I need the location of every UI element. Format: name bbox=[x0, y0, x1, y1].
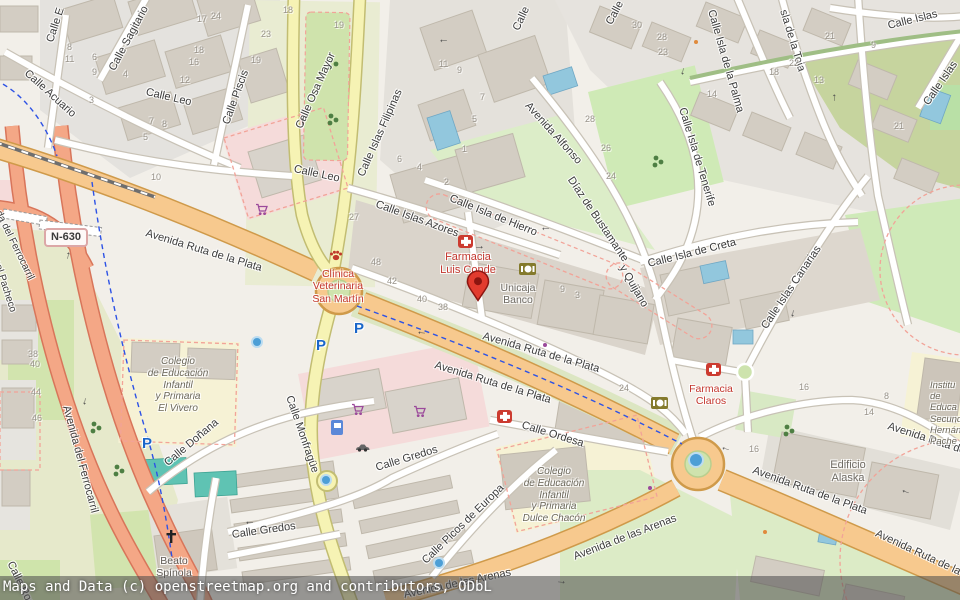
house-number: 8 bbox=[67, 42, 72, 52]
oneway-arrow: → bbox=[79, 395, 92, 408]
house-number: 18 bbox=[194, 45, 204, 55]
poi-claros-line2: Claros bbox=[680, 395, 742, 407]
house-number: 23 bbox=[658, 47, 668, 57]
house-number: 6 bbox=[397, 154, 402, 164]
attribution-bar: Maps and Data (c) openstreetmap.org and … bbox=[0, 576, 960, 600]
house-number: 40 bbox=[30, 359, 40, 369]
house-number: 7 bbox=[480, 92, 485, 102]
first-aid-icon bbox=[497, 410, 512, 423]
house-number: 8 bbox=[884, 391, 889, 401]
house-number: 9 bbox=[871, 40, 876, 50]
house-number: 3 bbox=[89, 95, 94, 105]
poi-claros-line1: Farmacia bbox=[680, 383, 742, 395]
poi-farmacia-luis-conde-line1: Farmacia bbox=[420, 251, 516, 264]
poi-farmacia-claros: Farmacia Claros bbox=[680, 383, 742, 408]
oneway-arrow: → bbox=[540, 224, 551, 235]
poi-instituto-line1: Institu bbox=[930, 380, 960, 391]
poi-unicaja-line2: Banco bbox=[488, 294, 548, 306]
oneway-arrow: → bbox=[416, 328, 428, 340]
poi-dot bbox=[694, 40, 698, 44]
poi-beato-line1: Beato bbox=[148, 555, 200, 567]
house-number: 7 bbox=[149, 116, 154, 126]
house-number: 48 bbox=[371, 257, 381, 267]
poi-chacon-line4: y Primaria bbox=[518, 501, 590, 513]
map-marker-pin[interactable] bbox=[466, 270, 490, 307]
house-number: 28 bbox=[585, 114, 595, 124]
house-number: 10 bbox=[151, 172, 161, 182]
road-shield-n630: N-630 bbox=[44, 228, 88, 247]
house-number: 18 bbox=[769, 67, 779, 77]
poi-dot bbox=[648, 486, 652, 490]
house-number: 23 bbox=[261, 29, 271, 39]
poi-clinica-veterinaria: Clínica Veterinaria San Martín bbox=[300, 268, 376, 305]
fountain-icon bbox=[320, 474, 332, 486]
car-dealer-icon bbox=[355, 439, 370, 457]
poi-instituto-line4: Hernán bbox=[930, 425, 960, 436]
house-number: 1 bbox=[462, 144, 467, 154]
poi-edificio-alaska: Edificio Alaska bbox=[820, 459, 876, 485]
house-number: 21 bbox=[825, 31, 835, 41]
house-number: 18 bbox=[283, 5, 293, 15]
poi-instituto-line5: Pache bbox=[930, 436, 960, 447]
parking-icon: P bbox=[142, 436, 152, 451]
poi-dot bbox=[543, 343, 547, 347]
house-number: 42 bbox=[387, 276, 397, 286]
poi-chacon-line5: Dulce Chacón bbox=[518, 513, 590, 525]
house-number: 27 bbox=[349, 212, 359, 222]
poi-instituto-line3: Secunda bbox=[930, 414, 960, 425]
oneway-arrow: → bbox=[531, 389, 544, 402]
atm-icon bbox=[651, 397, 668, 409]
supermarket-cart-icon bbox=[351, 403, 365, 421]
fuel-station-icon bbox=[331, 420, 343, 435]
poi-unicaja-line1: Unicaja bbox=[488, 282, 548, 294]
house-number: 9 bbox=[457, 65, 462, 75]
house-number: 40 bbox=[417, 294, 427, 304]
fountain-icon bbox=[251, 336, 263, 348]
veterinary-paw-icon bbox=[329, 249, 343, 267]
oneway-arrow: → bbox=[828, 92, 839, 103]
poi-alaska-line2: Alaska bbox=[820, 472, 876, 485]
house-number: 5 bbox=[143, 132, 148, 142]
house-number: 28 bbox=[657, 32, 667, 42]
poi-colegio-el-vivero: Colegio de Educación Infantil y Primaria… bbox=[132, 356, 224, 415]
house-number: 4 bbox=[417, 162, 422, 172]
house-number: 21 bbox=[894, 121, 904, 131]
house-number: 3 bbox=[575, 290, 580, 300]
house-number: 46 bbox=[32, 413, 42, 423]
oneway-arrow: → bbox=[677, 65, 690, 78]
poi-chacon-line1: Colegio bbox=[518, 466, 590, 478]
poi-vivero-line5: El Vivero bbox=[132, 403, 224, 415]
parking-icon: P bbox=[354, 321, 364, 336]
house-number: 38 bbox=[438, 302, 448, 312]
supermarket-cart-icon bbox=[413, 405, 427, 423]
poi-vivero-line4: y Primaria bbox=[132, 391, 224, 403]
poi-chacon-line3: Infantil bbox=[518, 490, 590, 502]
poi-vivero-line3: Infantil bbox=[132, 380, 224, 392]
pharmacy-icon bbox=[706, 363, 721, 376]
poi-instituto-line2: de Educa bbox=[930, 391, 960, 413]
oneway-arrow: → bbox=[438, 36, 449, 47]
poi-vivero-line1: Colegio bbox=[132, 356, 224, 368]
house-number: 14 bbox=[864, 407, 874, 417]
oneway-arrow: → bbox=[787, 307, 800, 320]
house-number: 19 bbox=[251, 55, 261, 65]
house-number: 24 bbox=[211, 11, 221, 21]
house-number: 9 bbox=[92, 67, 97, 77]
parking-icon: P bbox=[316, 338, 326, 353]
house-number: 16 bbox=[189, 57, 199, 67]
house-number: 24 bbox=[606, 171, 616, 181]
house-number: 16 bbox=[799, 382, 809, 392]
poi-clinica-line2: Veterinaria bbox=[300, 280, 376, 292]
house-number: 12 bbox=[180, 75, 190, 85]
house-number: 4 bbox=[123, 69, 128, 79]
poi-chacon-line2: de Educación bbox=[518, 478, 590, 490]
house-number: 19 bbox=[334, 20, 344, 30]
house-number: 16 bbox=[749, 444, 759, 454]
supermarket-cart-icon bbox=[255, 203, 269, 221]
oneway-arrow: → bbox=[61, 249, 74, 262]
house-number: 9 bbox=[560, 284, 565, 294]
poi-alaska-line1: Edificio bbox=[820, 459, 876, 472]
bank-icon bbox=[519, 263, 536, 275]
church-cross-icon bbox=[165, 530, 177, 549]
house-number: 2 bbox=[444, 177, 449, 187]
pharmacy-icon bbox=[458, 235, 473, 248]
fountain-icon bbox=[433, 557, 445, 569]
poi-instituto-partial: Institu de Educa Secunda Hernán Pache bbox=[930, 380, 960, 447]
oneway-arrow: → bbox=[296, 116, 307, 127]
house-number: 11 bbox=[65, 54, 74, 64]
poi-dot bbox=[763, 530, 767, 534]
house-number: 11 bbox=[439, 59, 448, 69]
house-number: 13 bbox=[814, 75, 824, 85]
house-number: 26 bbox=[601, 143, 611, 153]
oneway-arrow: → bbox=[474, 241, 485, 252]
fountain-icon bbox=[688, 452, 704, 468]
poi-unicaja-banco: Unicaja Banco bbox=[488, 282, 548, 307]
house-number: 24 bbox=[619, 383, 629, 393]
house-number: 22 bbox=[789, 58, 799, 68]
poi-clinica-line3: San Martín bbox=[300, 293, 376, 305]
poi-vivero-line2: de Educación bbox=[132, 368, 224, 380]
house-number: 6 bbox=[92, 52, 97, 62]
house-number: 44 bbox=[31, 387, 41, 397]
house-number: 30 bbox=[632, 20, 642, 30]
poi-colegio-dulce-chacon: Colegio de Educación Infantil y Primaria… bbox=[518, 466, 590, 525]
house-number: 8 bbox=[162, 119, 167, 129]
attribution-text: Maps and Data (c) openstreetmap.org and … bbox=[3, 579, 492, 595]
oneway-arrow: → bbox=[244, 518, 255, 529]
house-number: 17 bbox=[197, 14, 207, 24]
map-canvas[interactable]: Calle Acuario Calle E Calle Sagitario Ca… bbox=[0, 0, 960, 600]
house-number: 38 bbox=[28, 349, 38, 359]
house-number: 14 bbox=[707, 89, 717, 99]
house-number: 5 bbox=[472, 114, 477, 124]
poi-clinica-line1: Clínica bbox=[300, 268, 376, 280]
